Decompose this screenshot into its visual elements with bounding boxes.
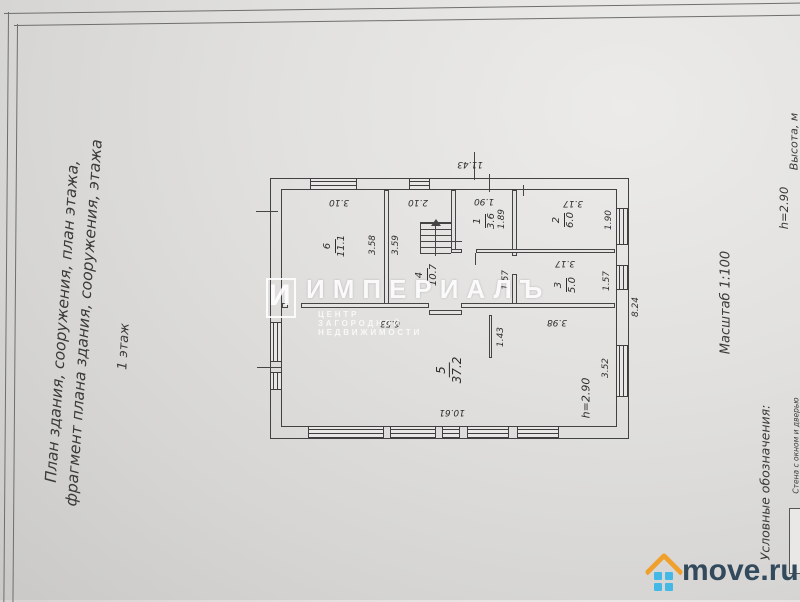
room-area: 3.6 xyxy=(486,213,498,229)
window-symbol xyxy=(467,426,509,438)
dim-overall-right: 8.24 xyxy=(631,297,641,317)
room-number: 2 xyxy=(552,213,565,227)
window-symbol xyxy=(308,426,384,438)
room-label-1: 1 3.6 xyxy=(473,213,497,229)
height-value: h=2.90 xyxy=(777,168,791,248)
window-symbol xyxy=(390,426,436,438)
logo-square xyxy=(665,572,673,580)
room-area: 11.1 xyxy=(336,235,348,257)
legend-item-label: Стена с окном и дверью xyxy=(792,386,800,506)
room-label-6: 6 11.1 xyxy=(323,235,347,257)
room-area: 5.0 xyxy=(567,277,579,293)
dim-overall-top: 11.43 xyxy=(457,159,483,169)
logo-square xyxy=(665,583,673,591)
room-number: 5 xyxy=(435,362,450,378)
dim-room5-right: 3.52 xyxy=(601,358,611,378)
dim-room2-top: 3.17 xyxy=(563,198,583,208)
room-number: 6 xyxy=(323,239,336,253)
partition-room5 xyxy=(489,315,492,358)
dim-room5-top-right: 3.98 xyxy=(547,317,567,327)
window-symbol xyxy=(517,426,559,438)
wall-tick xyxy=(489,174,490,192)
window-symbol xyxy=(270,322,282,362)
wall-tick xyxy=(450,241,462,242)
dim-room3-top: 3.17 xyxy=(555,258,575,268)
window-symbol xyxy=(616,345,628,397)
window-symbol xyxy=(616,265,628,290)
room-label-3: 3 5.0 xyxy=(554,277,578,293)
dim-room6-right: 3.58 xyxy=(368,235,378,255)
agency-logo-frame: И xyxy=(266,278,296,318)
wall-tick xyxy=(523,185,524,196)
window-symbol xyxy=(616,208,628,245)
room-label-5: 5 37.2 xyxy=(435,357,463,384)
wall-tick xyxy=(257,367,281,368)
legend-title: Условные обозначения: xyxy=(758,393,773,573)
dim-room1-top: 1.90 xyxy=(474,196,494,206)
scale-label: Масштаб 1:100 xyxy=(719,243,734,363)
floor-plan: 11.43 3.10 2.10 1.90 3.17 3.17 6.53 3.98… xyxy=(270,178,630,439)
sheet-title: План здания, сооружения, план этажа, фра… xyxy=(36,106,110,538)
agency-tagline: ЦЕНТР ЗАГОРОДНОЙ НЕДВИЖИМОСТИ xyxy=(318,310,422,337)
stair-direction-arrow xyxy=(435,221,436,256)
dim-room6-top: 3.10 xyxy=(329,197,349,207)
dim-room4-top: 2.10 xyxy=(408,197,428,207)
house-roof-icon xyxy=(644,552,684,592)
dim-room4-left: 3.59 xyxy=(391,235,401,255)
agency-brand-name: ИМПЕРИАЛЪ xyxy=(306,274,550,305)
sheet-frame-left-inner xyxy=(12,24,18,602)
room-area: 37.2 xyxy=(450,357,464,384)
agency-logo-letter: И xyxy=(269,279,291,313)
dim-room5-height: h=2.90 xyxy=(580,378,593,419)
room-number: 3 xyxy=(554,278,567,292)
room-area: 6.0 xyxy=(565,212,577,228)
dim-room1-right: 1.89 xyxy=(497,209,507,229)
logo-square xyxy=(654,583,662,591)
sheet-frame-left-outer xyxy=(3,12,9,602)
window-symbol xyxy=(270,372,282,390)
logo-square xyxy=(654,572,662,580)
room-label-2: 2 6.0 xyxy=(552,212,576,228)
sliding-door-symbol xyxy=(429,310,462,315)
wall-under-rooms12 xyxy=(476,249,615,253)
wall-under-room1-a xyxy=(451,249,462,253)
dim-room5-bottom: 10.61 xyxy=(439,407,465,417)
floor-label: 1 этаж xyxy=(114,306,133,387)
stair-arrow-head xyxy=(431,219,441,226)
window-symbol xyxy=(409,178,430,190)
wall-tick xyxy=(256,211,278,212)
wall-room1-room2 xyxy=(512,190,517,251)
sheet-frame-top-outer xyxy=(4,3,800,14)
dim-room5-partition: 1.43 xyxy=(496,327,506,347)
window-symbol xyxy=(310,178,357,190)
door-leaf xyxy=(475,253,476,265)
window-symbol xyxy=(442,426,460,438)
dim-room3-right: 1.57 xyxy=(602,271,612,291)
moveru-logo-text: move.ru xyxy=(682,554,799,588)
dim-room2-right: 1.90 xyxy=(604,210,614,230)
room-number: 1 xyxy=(473,214,486,228)
sheet-frame-top-inner xyxy=(14,15,800,26)
staircase xyxy=(420,222,451,254)
